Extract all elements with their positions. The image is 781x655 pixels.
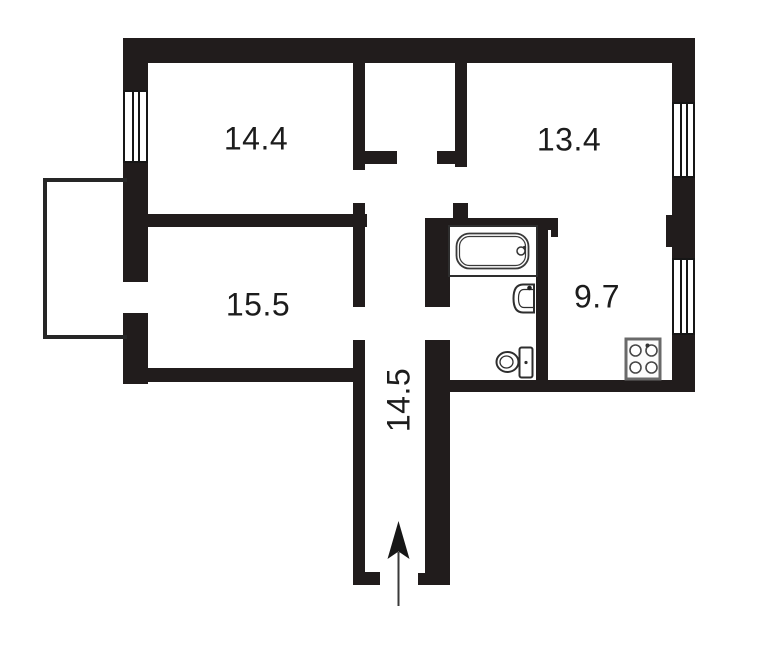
room-area-label-kitchen: 9.7 [574, 279, 620, 316]
floor-plan-canvas: 14.4 13.4 15.5 9.7 14.5 [0, 0, 781, 655]
room-area-label-top-left: 14.4 [224, 121, 288, 158]
entrance-arrow-icon [388, 521, 410, 606]
room-area-label-top-right: 13.4 [537, 122, 601, 159]
room-area-label-hallway: 14.5 [381, 368, 418, 432]
stove-icon [626, 339, 660, 379]
sink-icon [514, 285, 535, 313]
room-area-label-mid-left: 15.5 [226, 287, 290, 324]
fixtures-layer [0, 0, 781, 655]
toilet-icon [497, 348, 533, 378]
bathtub-icon [449, 226, 537, 276]
